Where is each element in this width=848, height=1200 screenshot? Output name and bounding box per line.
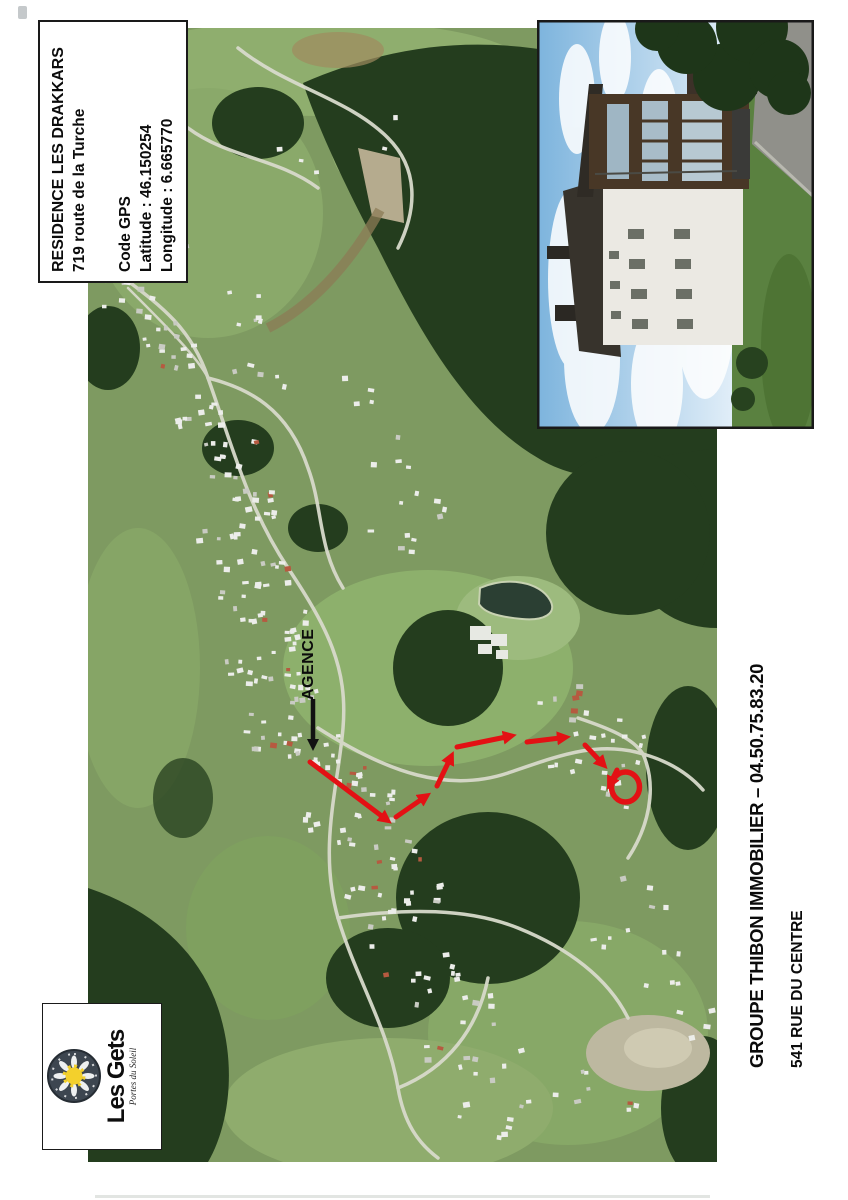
agency-name-phone: GROUPE THIBON IMMOBILIER – 04.50.75.83.2… xyxy=(742,658,772,1068)
agence-label-wrap: AGENCE xyxy=(295,622,322,700)
gps-heading: Code GPS xyxy=(115,28,136,272)
scan-artifact xyxy=(18,6,27,19)
property-photo-image xyxy=(537,20,814,429)
scan-edge-line xyxy=(95,1195,710,1198)
gps-longitude: Longitude : 6.665770 xyxy=(157,28,178,272)
gps-latitude: Latitude : 46.150254 xyxy=(136,28,157,272)
agency-contact-line: GROUPE THIBON IMMOBILIER – 04.50.75.83.2… xyxy=(742,658,772,1068)
property-photo xyxy=(537,20,814,429)
agency-address-line: 541 RUE DU CENTRE xyxy=(786,928,810,1068)
residence-name: RESIDENCE LES DRAKKARS xyxy=(48,28,69,272)
logo-wordmark: Les Gets xyxy=(106,1004,128,1149)
agency-address: 541 RUE DU CENTRE xyxy=(786,928,810,1068)
residence-info-box: RESIDENCE LES DRAKKARS 719 route de la T… xyxy=(38,20,188,283)
agence-label: AGENCE xyxy=(295,622,322,700)
residence-address: 719 route de la Turche xyxy=(69,28,90,272)
sun-emblem-icon xyxy=(47,1050,101,1104)
les-gets-logo: Les Gets Portes du Soleil xyxy=(42,1003,162,1150)
logo-tagline: Portes du Soleil xyxy=(128,1004,138,1149)
scanned-location-document: { "info_box": { "title": "RESIDENCE LES … xyxy=(0,0,848,1200)
